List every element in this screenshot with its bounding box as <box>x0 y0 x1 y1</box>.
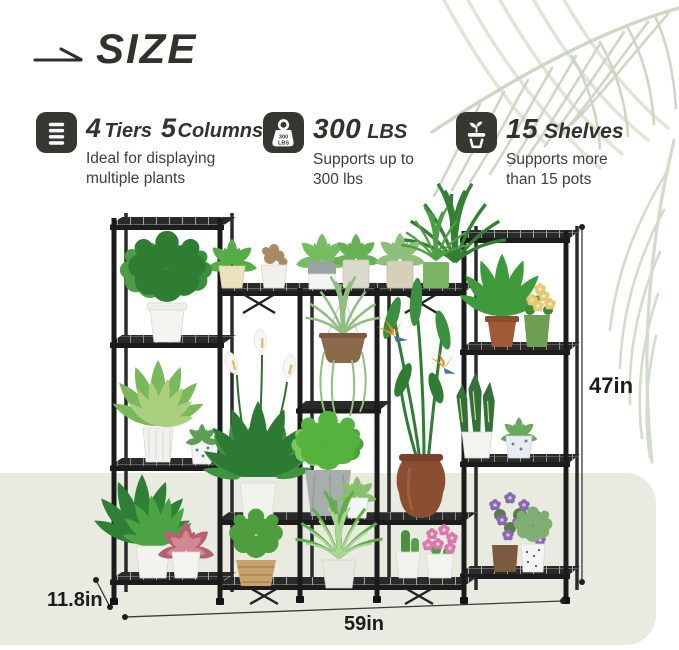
feature-tiers-columns: 4Tiers5Columns Ideal for displayingmulti… <box>36 112 251 189</box>
width-dimension-label: 59in <box>344 613 384 636</box>
feature-weight-capacity: 300 LBS 300LBS Supports up to300 lbs <box>263 112 453 190</box>
stand-plants <box>91 184 555 588</box>
plant-purple-asters <box>489 492 552 572</box>
feature-title: 300LBS <box>313 112 414 143</box>
svg-text:LBS: LBS <box>278 140 289 146</box>
feature-description: Ideal for displayingmultiple plants <box>86 149 263 189</box>
feature-title: 15Shelves <box>506 112 624 143</box>
plant-pink-flowers <box>422 524 458 578</box>
plant-stand-illustration <box>0 0 679 650</box>
plant-wicker-basket-fern <box>229 509 283 586</box>
potted-plant-icon <box>456 112 497 153</box>
plant-succulent-row <box>206 184 506 289</box>
plant-hanging-basket <box>306 277 381 419</box>
feature-description: Supports morethan 15 pots <box>506 150 624 190</box>
plant-peperomia <box>120 231 212 342</box>
page-title: SIZE <box>96 28 197 70</box>
plant-blue-pot-succulent <box>500 417 538 458</box>
weight-icon: 300 LBS <box>263 112 304 153</box>
feature-shelves: 15Shelves Supports morethan 15 pots <box>456 112 646 190</box>
plant-cactus <box>396 530 420 578</box>
height-dimension-label: 47in <box>589 373 633 399</box>
feature-title: 4Tiers5Columns <box>86 112 263 142</box>
feature-description: Supports up to300 lbs <box>313 150 414 190</box>
size-arrow-icon <box>33 44 85 71</box>
depth-dimension-label: 11.8in <box>47 589 103 612</box>
list-icon <box>36 112 77 153</box>
